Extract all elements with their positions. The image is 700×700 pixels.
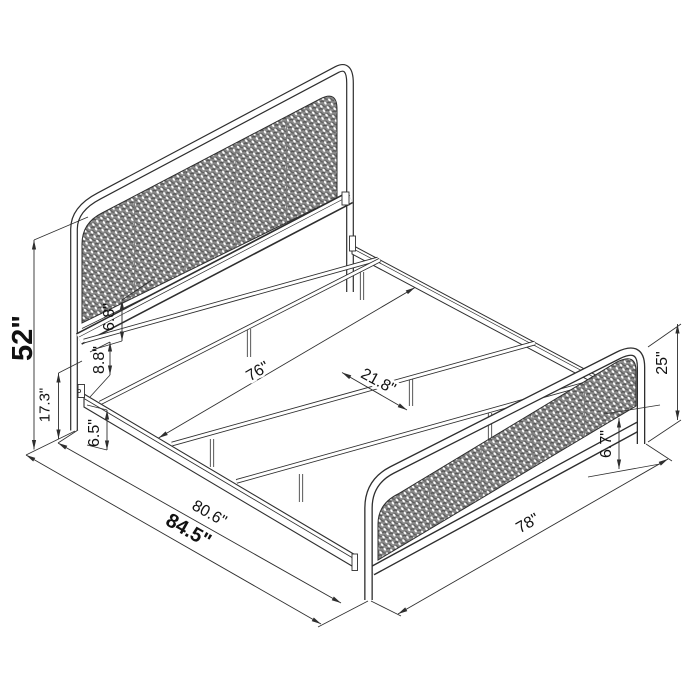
svg-text:6.8": 6.8" [101, 303, 118, 331]
svg-text:6.5": 6.5" [86, 419, 103, 447]
svg-text:52": 52" [7, 315, 39, 361]
svg-text:6.7": 6.7" [598, 430, 615, 458]
svg-text:8.8": 8.8" [91, 346, 108, 374]
svg-text:25": 25" [654, 351, 671, 374]
svg-text:17.3": 17.3" [36, 388, 53, 423]
